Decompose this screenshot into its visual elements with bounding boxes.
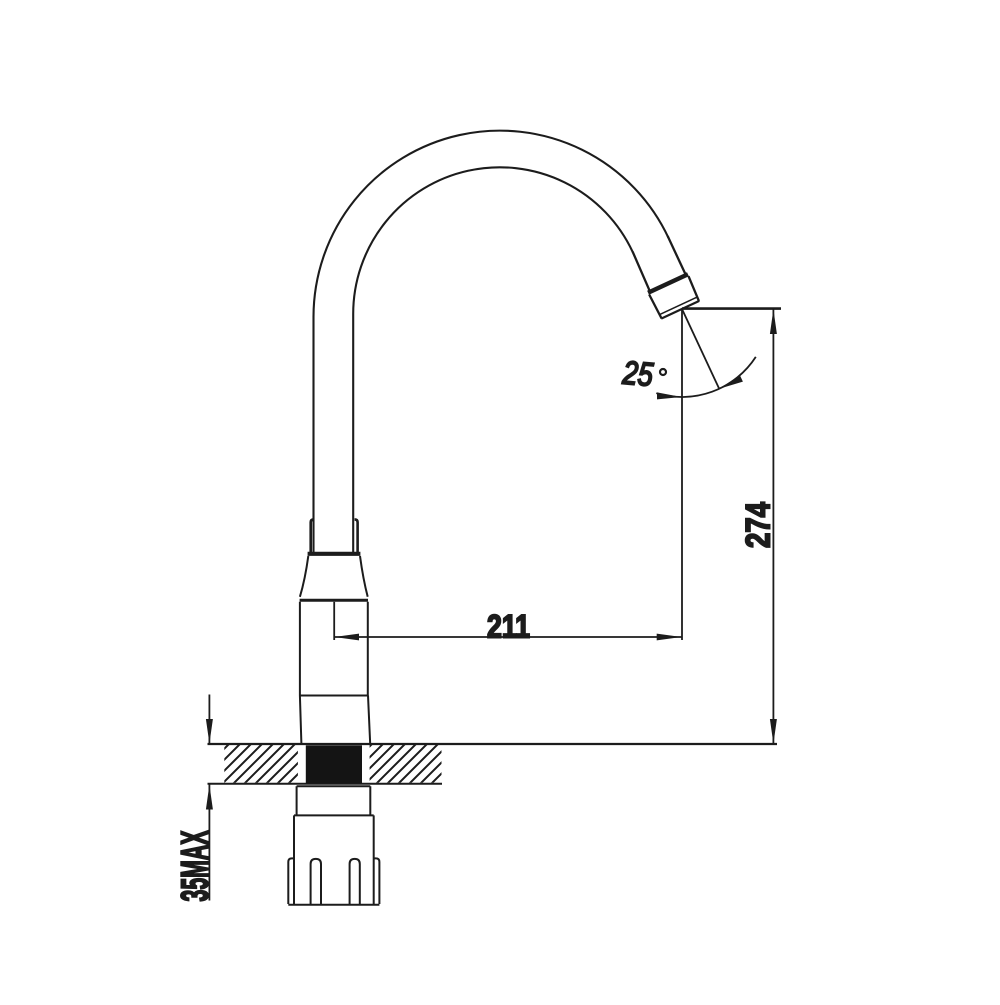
svg-text:25: 25 bbox=[621, 354, 655, 394]
svg-text:274: 274 bbox=[740, 502, 778, 548]
svg-text:35MAX: 35MAX bbox=[175, 830, 217, 901]
svg-text:211: 211 bbox=[487, 609, 530, 645]
